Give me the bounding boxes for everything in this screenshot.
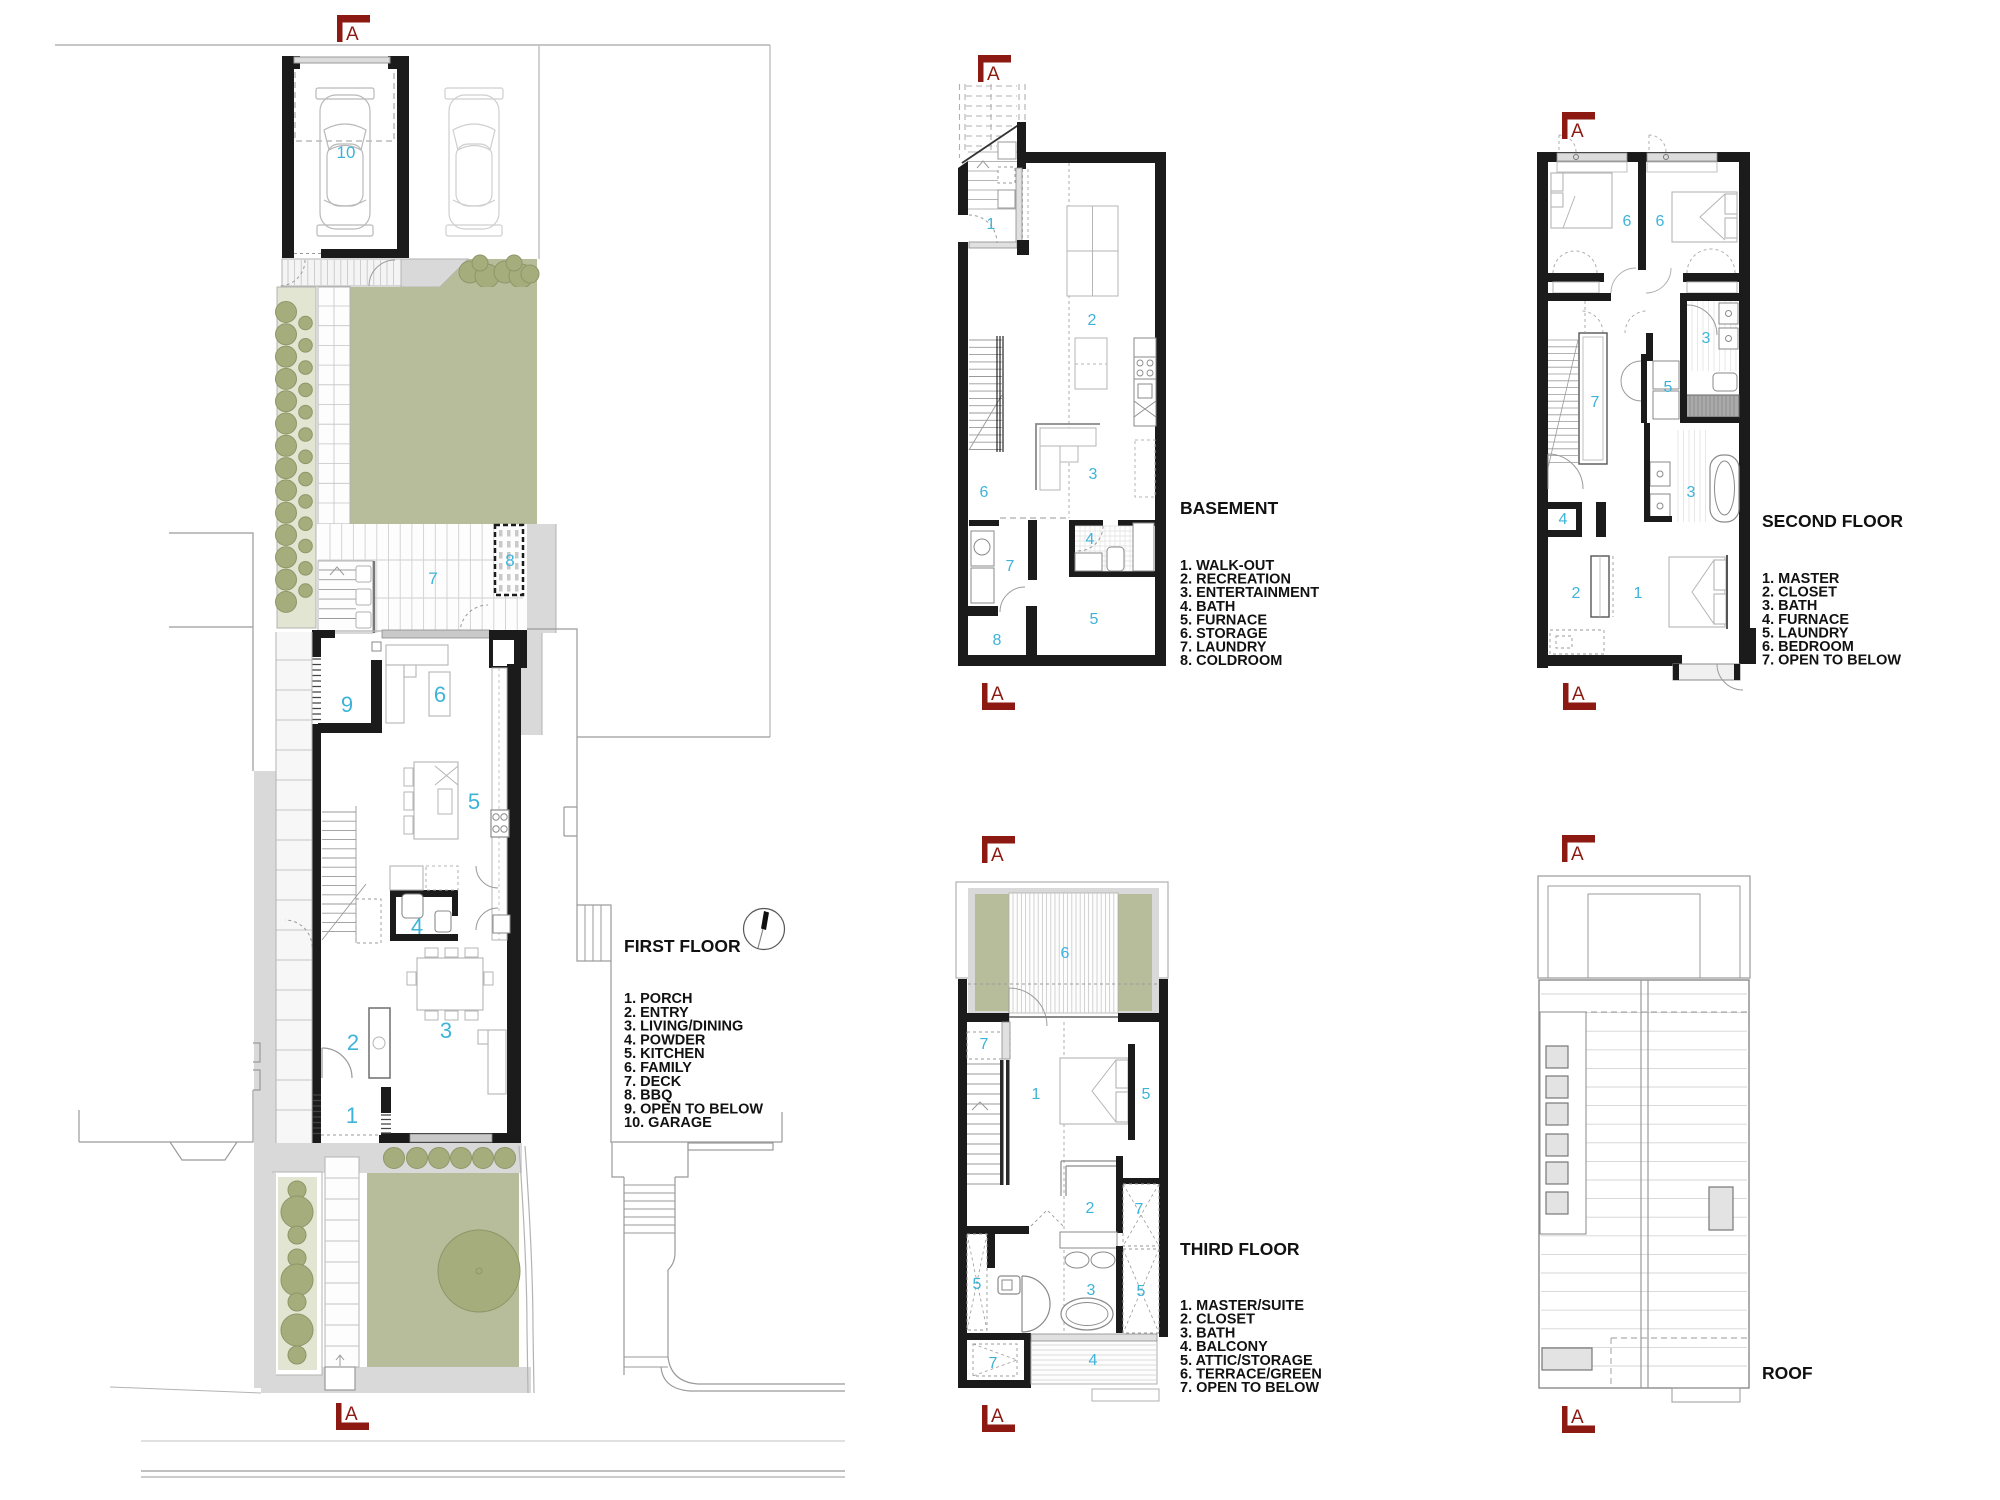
svg-text:7. OPEN TO BELOW: 7. OPEN TO BELOW (1180, 1380, 1319, 1396)
svg-text:6: 6 (1623, 213, 1632, 230)
svg-text:7: 7 (428, 569, 437, 588)
svg-text:THIRD FLOOR: THIRD FLOOR (1180, 1239, 1300, 1259)
svg-text:3: 3 (440, 1018, 452, 1043)
svg-text:A: A (1571, 1407, 1584, 1428)
svg-text:5: 5 (1137, 1283, 1146, 1300)
svg-text:7: 7 (1006, 558, 1015, 575)
svg-text:4: 4 (411, 914, 423, 939)
svg-text:A: A (1571, 121, 1584, 142)
svg-text:2: 2 (1086, 1200, 1095, 1217)
svg-text:5: 5 (468, 789, 480, 814)
svg-text:BASEMENT: BASEMENT (1180, 498, 1279, 518)
svg-text:2: 2 (347, 1030, 359, 1055)
svg-text:A: A (346, 24, 359, 45)
svg-text:5: 5 (1090, 611, 1099, 628)
svg-text:4: 4 (1089, 1352, 1098, 1369)
svg-text:1: 1 (1032, 1086, 1041, 1103)
svg-text:A: A (987, 64, 1000, 85)
svg-text:10. GARAGE: 10. GARAGE (624, 1115, 712, 1131)
svg-text:7. OPEN TO BELOW: 7. OPEN TO BELOW (1762, 653, 1901, 669)
svg-text:ROOF: ROOF (1762, 1363, 1813, 1383)
svg-text:6: 6 (980, 484, 989, 501)
svg-text:5: 5 (1142, 1086, 1151, 1103)
svg-text:6: 6 (434, 682, 446, 707)
svg-text:8: 8 (993, 632, 1002, 649)
svg-text:FIRST FLOOR: FIRST FLOOR (624, 936, 741, 956)
svg-text:3: 3 (1687, 484, 1696, 501)
svg-text:A: A (1571, 844, 1584, 865)
svg-text:A: A (991, 845, 1004, 866)
svg-text:2: 2 (1088, 312, 1097, 329)
svg-text:10: 10 (337, 143, 356, 162)
svg-text:7: 7 (1135, 1201, 1144, 1218)
svg-text:3: 3 (1087, 1282, 1096, 1299)
svg-text:3: 3 (1089, 466, 1098, 483)
svg-text:7: 7 (989, 1355, 998, 1372)
svg-text:7: 7 (1591, 394, 1600, 411)
svg-text:1: 1 (987, 216, 996, 233)
svg-text:A: A (991, 1406, 1004, 1427)
svg-text:5: 5 (1664, 379, 1673, 396)
svg-text:A: A (991, 684, 1004, 705)
svg-text:1: 1 (1634, 585, 1643, 602)
svg-text:7: 7 (980, 1036, 989, 1053)
svg-text:SECOND FLOOR: SECOND FLOOR (1762, 511, 1903, 531)
svg-text:4: 4 (1559, 511, 1568, 528)
svg-text:6: 6 (1061, 945, 1070, 962)
svg-text:1: 1 (346, 1103, 358, 1128)
svg-text:A: A (1572, 684, 1585, 705)
svg-text:2: 2 (1572, 585, 1581, 602)
svg-text:A: A (345, 1404, 358, 1425)
svg-text:6: 6 (1656, 213, 1665, 230)
svg-text:8. COLDROOM: 8. COLDROOM (1180, 653, 1282, 669)
svg-text:5: 5 (973, 1276, 982, 1293)
svg-text:9: 9 (341, 692, 353, 717)
svg-text:4: 4 (1086, 531, 1095, 548)
svg-text:3: 3 (1702, 330, 1711, 347)
svg-text:8: 8 (505, 551, 514, 570)
